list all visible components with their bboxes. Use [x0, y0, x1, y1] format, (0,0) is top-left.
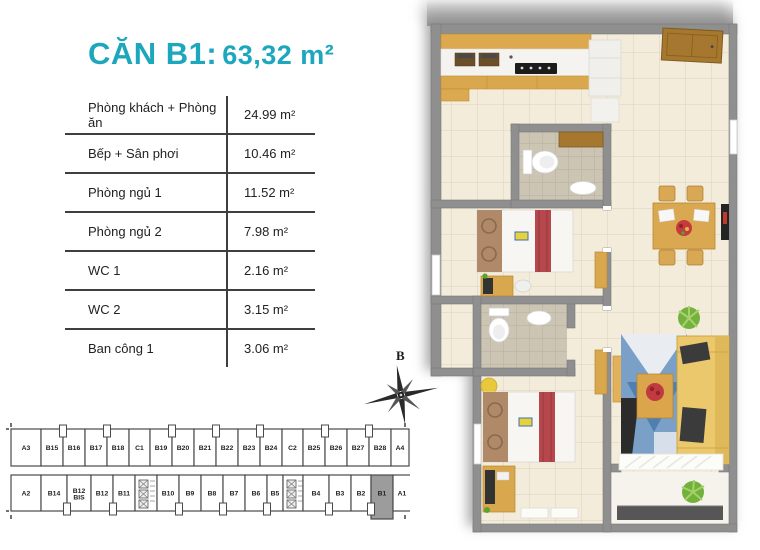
unit-label: B25 [308, 445, 321, 452]
unit-label: B28 [374, 445, 387, 452]
unit-label: B17 [90, 445, 103, 452]
wc1-door-icon [559, 132, 603, 147]
facade-notch [326, 503, 333, 515]
sink-icon [570, 182, 596, 195]
fridge-cabinet [589, 40, 621, 96]
magazine [515, 232, 528, 240]
window-sill [551, 508, 578, 518]
facade-notch [257, 425, 264, 437]
facade-notch [104, 425, 111, 437]
facade-notch [368, 503, 375, 515]
room-area-value: 3.15 m² [228, 302, 315, 317]
unit-label: B4 [312, 491, 321, 498]
table-row: Bếp + Sân phơi10.46 m² [65, 135, 315, 174]
unit-label: B1 [378, 491, 387, 498]
table-row: WC 23.15 m² [65, 291, 315, 330]
room-areas-table: Phòng khách + Phòng ăn24.99 m² Bếp + Sân… [65, 96, 315, 367]
room-label: WC 2 [65, 291, 228, 328]
unit-label: B12 [96, 491, 109, 498]
compass-north-label: B [396, 348, 405, 363]
unit-label: B6 [252, 491, 261, 498]
magazine [519, 418, 532, 426]
sliding-door-icon [619, 454, 723, 470]
facade-notch [176, 503, 183, 515]
room-label: WC 1 [65, 252, 228, 289]
unit-label: C2 [288, 445, 297, 452]
laundry-shelf [441, 89, 469, 101]
sofa-icon [677, 336, 729, 464]
unit-label: B18 [112, 445, 125, 452]
facade-notch [213, 425, 220, 437]
unit-label: B23 [243, 445, 256, 452]
window-sill [521, 508, 548, 518]
facade-notch [64, 503, 71, 515]
unit-name: CĂN B1: [88, 36, 217, 71]
unit-label: B9 [186, 491, 195, 498]
room-label: Ban công 1 [65, 330, 228, 367]
facade-notch [322, 425, 329, 437]
entry-door-icon [661, 28, 723, 63]
unit-label: B7 [230, 491, 239, 498]
page-title: CĂN B1: 63,32 m² [88, 36, 334, 72]
unit-label: B5 [271, 491, 280, 498]
unit-label: B11 [118, 491, 130, 498]
unit-label: B10 [162, 491, 175, 498]
table-row: Phòng ngủ 27.98 m² [65, 213, 315, 252]
unit-label: B16 [68, 445, 81, 452]
unit-label: B22 [221, 445, 234, 452]
room-area-value: 24.99 m² [228, 107, 315, 122]
floor-plan [425, 0, 760, 550]
unit-label: B24 [265, 445, 278, 452]
unit-label: A4 [396, 445, 405, 452]
unit-label: B15 [46, 445, 59, 452]
chair-icon [515, 280, 531, 292]
unit-label: B20 [177, 445, 190, 452]
facade-notch [60, 425, 67, 437]
room-label: Phòng ngủ 2 [65, 213, 228, 250]
facade-notch [110, 503, 117, 515]
table-row: Phòng ngủ 111.52 m² [65, 174, 315, 213]
facade-notch [264, 503, 271, 515]
unit-label: C1 [135, 445, 144, 452]
room-area-value: 2.16 m² [228, 263, 315, 278]
shadow-fade [427, 0, 733, 26]
sink-icon [527, 311, 551, 325]
table-row: Phòng khách + Phòng ăn24.99 m² [65, 96, 315, 135]
room-label: Bếp + Sân phơi [65, 135, 228, 172]
room-label: Phòng khách + Phòng ăn [65, 96, 228, 133]
unit-label: B27 [352, 445, 365, 452]
room-area-value: 7.98 m² [228, 224, 315, 239]
room-area-value: 10.46 m² [228, 146, 315, 161]
unit-label: A1 [398, 491, 407, 498]
unit-label: B3 [336, 491, 345, 498]
facade-notch [169, 425, 176, 437]
unit-label: A3 [22, 445, 31, 452]
floor-strip: A3B15B16B17B18C1B19B20B21B22B23B24C2B25B… [6, 423, 410, 523]
room-label: Phòng ngủ 1 [65, 174, 228, 211]
unit-label: B2 [357, 491, 366, 498]
unit-label: B19 [155, 445, 168, 452]
unit-area: 63,32 m² [222, 40, 334, 70]
unit-label: B26 [330, 445, 343, 452]
unit-label: B8 [208, 491, 217, 498]
unit-label: A2 [22, 491, 31, 498]
room-area-value: 3.06 m² [228, 341, 315, 356]
unit-label: B12BIS [73, 488, 86, 502]
unit-label: B14 [48, 491, 61, 498]
table-row: WC 12.16 m² [65, 252, 315, 291]
facade-notch [220, 503, 227, 515]
facade-notch [366, 425, 373, 437]
room-area-value: 11.52 m² [228, 185, 315, 200]
table-row: Ban công 13.06 m² [65, 330, 315, 367]
unit-label: B21 [199, 445, 212, 452]
